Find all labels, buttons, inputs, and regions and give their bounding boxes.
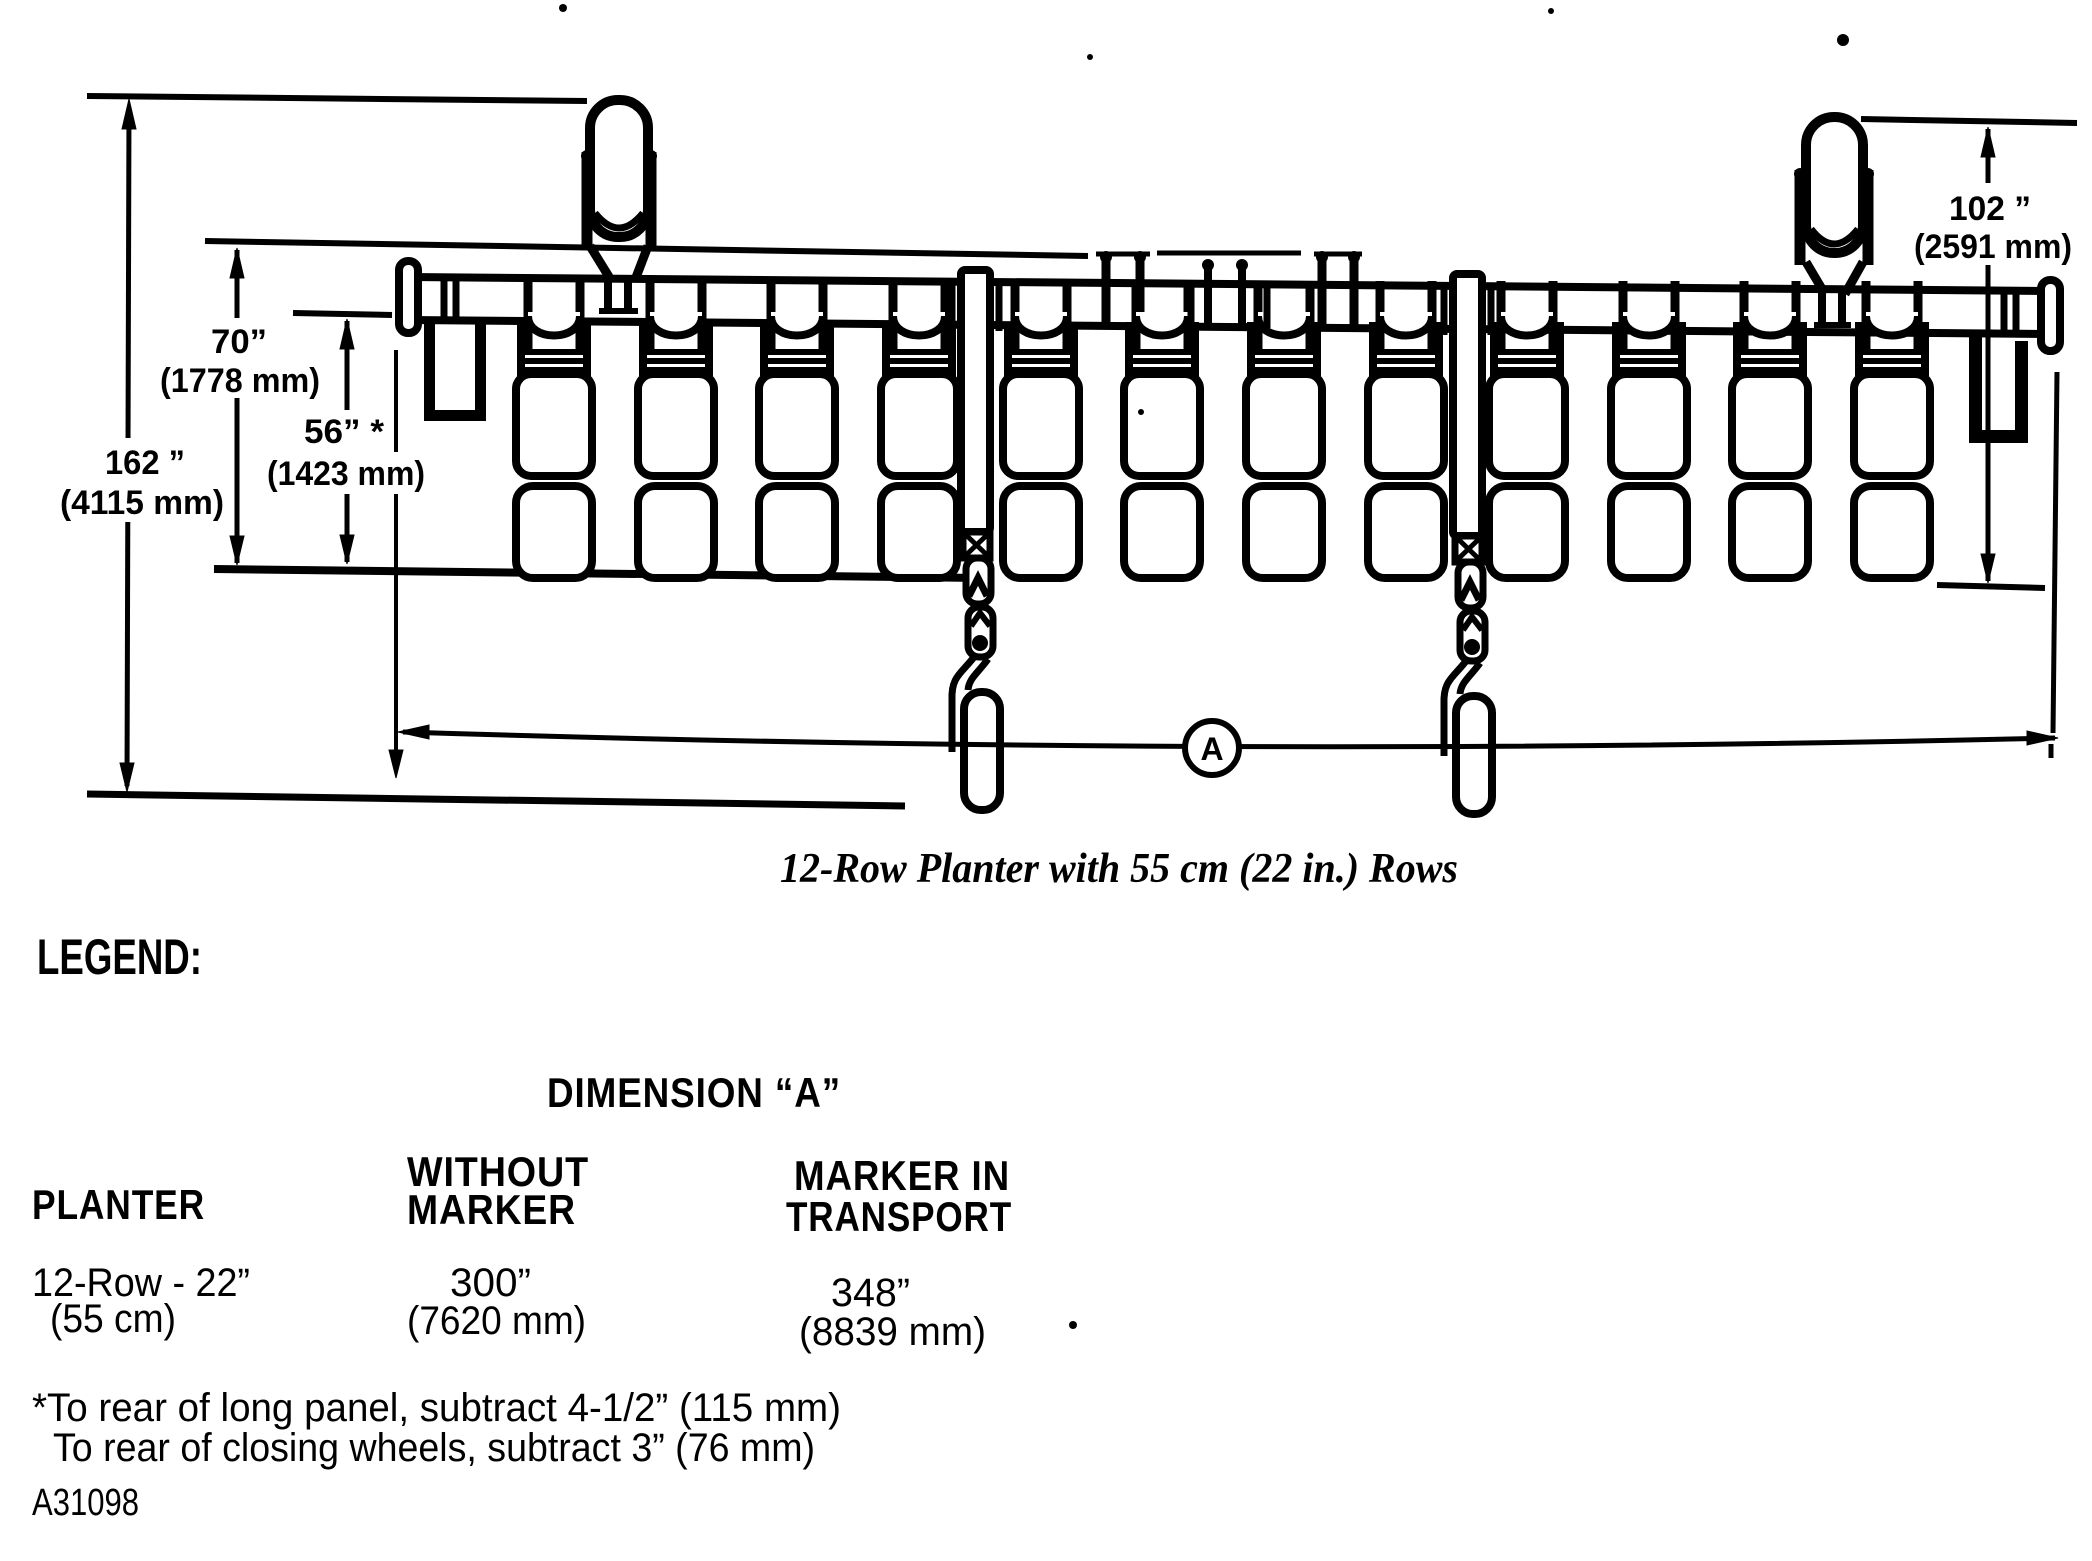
svg-text:(7620 mm): (7620 mm) bbox=[407, 1299, 586, 1343]
svg-text:(1778 mm): (1778 mm) bbox=[160, 362, 320, 400]
svg-text:MARKER: MARKER bbox=[407, 1186, 576, 1233]
svg-text:(55 cm): (55 cm) bbox=[50, 1297, 176, 1341]
svg-text:56” *: 56” * bbox=[304, 413, 385, 451]
svg-text:(4115 mm): (4115 mm) bbox=[60, 484, 224, 522]
svg-text:(8839 mm): (8839 mm) bbox=[799, 1310, 986, 1354]
svg-text:*To rear of long panel, subtra: *To rear of long panel, subtract 4-1/2” … bbox=[32, 1386, 841, 1430]
svg-text:A31098: A31098 bbox=[32, 1482, 139, 1524]
svg-text:MARKER IN: MARKER IN bbox=[794, 1152, 1010, 1199]
svg-text:(1423 mm): (1423 mm) bbox=[267, 455, 425, 493]
svg-text:A: A bbox=[1200, 731, 1223, 767]
svg-text:102 ”: 102 ” bbox=[1949, 190, 2031, 228]
svg-text:(2591 mm): (2591 mm) bbox=[1914, 228, 2072, 266]
svg-text:DIMENSION “A”: DIMENSION “A” bbox=[547, 1069, 841, 1116]
svg-text:LEGEND:: LEGEND: bbox=[37, 929, 202, 985]
svg-text:348”: 348” bbox=[831, 1271, 910, 1315]
svg-text:To rear of closing wheels, sub: To rear of closing wheels, subtract 3” (… bbox=[53, 1426, 815, 1470]
svg-text:PLANTER: PLANTER bbox=[32, 1181, 205, 1228]
svg-text:TRANSPORT: TRANSPORT bbox=[786, 1193, 1012, 1240]
svg-text:70”: 70” bbox=[211, 323, 267, 361]
svg-text:12-Row Planter with 55 cm (22: 12-Row Planter with 55 cm (22 in.) Rows bbox=[780, 846, 1458, 892]
svg-text:162 ”: 162 ” bbox=[105, 444, 185, 482]
